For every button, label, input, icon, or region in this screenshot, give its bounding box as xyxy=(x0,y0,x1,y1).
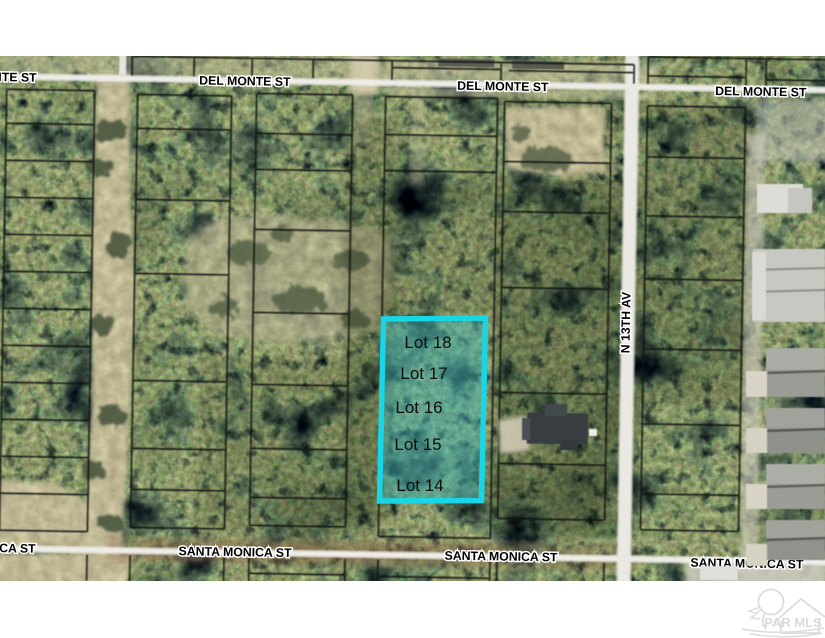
svg-text:DEL MONTE ST: DEL MONTE ST xyxy=(199,73,291,89)
svg-text:N 13TH AV: N 13TH AV xyxy=(618,291,633,354)
svg-text:Lot 18: Lot 18 xyxy=(404,333,451,352)
svg-text:Lot 14: Lot 14 xyxy=(396,476,443,495)
svg-text:SANTA MONICA ST: SANTA MONICA ST xyxy=(444,549,558,565)
svg-text:PAR MLS: PAR MLS xyxy=(764,615,822,630)
svg-text:Lot 16: Lot 16 xyxy=(395,398,442,417)
svg-text:DEL MONTE ST: DEL MONTE ST xyxy=(715,84,807,100)
svg-text:SANTA MONICA ST: SANTA MONICA ST xyxy=(179,544,293,560)
svg-text:Lot 17: Lot 17 xyxy=(400,364,447,383)
svg-text:Lot 15: Lot 15 xyxy=(394,435,441,454)
svg-text:SANTA MONICA ST: SANTA MONICA ST xyxy=(0,540,36,556)
svg-text:DEL MONTE ST: DEL MONTE ST xyxy=(457,79,549,95)
svg-text:DEL MONTE ST: DEL MONTE ST xyxy=(0,69,37,85)
